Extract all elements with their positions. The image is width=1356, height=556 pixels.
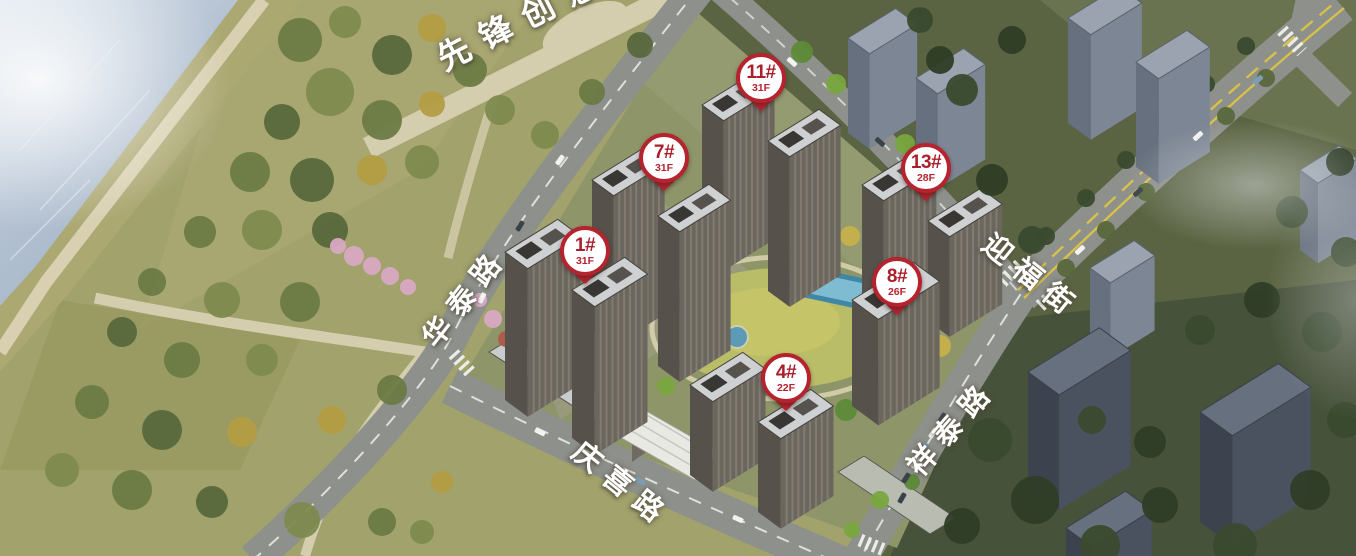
building-number: 11# — [746, 63, 775, 82]
building-marker-11[interactable]: 11# 31F — [730, 53, 792, 108]
building-number: 13# — [911, 153, 941, 172]
marker-bubble: 13# 28F — [901, 143, 951, 193]
aerial-render — [0, 0, 1356, 556]
building-number: 4# — [776, 363, 796, 382]
building-number: 8# — [887, 267, 907, 286]
marker-bubble: 11# 31F — [736, 53, 786, 103]
building-marker-8[interactable]: 8# 26F — [866, 257, 928, 312]
building-marker-7[interactable]: 7# 31F — [633, 133, 695, 188]
aerial-masterplan-view: 先锋创意 华泰路 迎福街 祥泰路 庆喜路 1# 31F 7# 31F 11# 3… — [0, 0, 1356, 556]
building-marker-1[interactable]: 1# 31F — [554, 226, 616, 281]
marker-bubble: 7# 31F — [639, 133, 689, 183]
building-floors: 28F — [917, 173, 935, 184]
building-number: 7# — [654, 143, 674, 162]
building-marker-4[interactable]: 4# 22F — [755, 353, 817, 408]
marker-bubble: 1# 31F — [560, 226, 610, 276]
building-floors: 26F — [888, 287, 906, 298]
building-floors: 22F — [777, 383, 795, 394]
building-floors: 31F — [576, 256, 594, 267]
marker-bubble: 4# 22F — [761, 353, 811, 403]
building-number: 1# — [575, 236, 595, 255]
building-floors: 31F — [752, 83, 770, 94]
building-marker-13[interactable]: 13# 28F — [895, 143, 957, 198]
building-floors: 31F — [655, 163, 673, 174]
marker-bubble: 8# 26F — [872, 257, 922, 307]
